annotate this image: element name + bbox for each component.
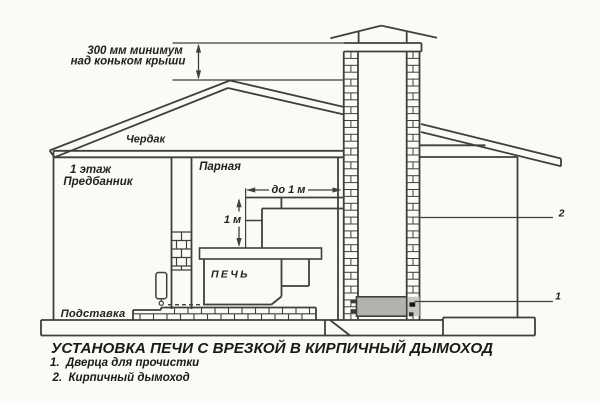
svg-text:1 м: 1 м [224, 214, 241, 226]
svg-text:ПЕЧЬ: ПЕЧЬ [211, 269, 250, 281]
svg-text:УСТАНОВКА ПЕЧИ С ВРЕЗКОЙ В КИР: УСТАНОВКА ПЕЧИ С ВРЕЗКОЙ В КИРПИЧНЫЙ ДЫМ… [51, 339, 493, 357]
svg-text:над коньком крыши: над коньком крыши [71, 56, 186, 68]
svg-text:1. Дверца для прочистки: 1. Дверца для прочистки [50, 357, 199, 369]
svg-text:Парная: Парная [199, 161, 241, 173]
svg-text:2. Кирпичный дымоход: 2. Кирпичный дымоход [52, 372, 190, 384]
svg-text:1: 1 [555, 291, 561, 303]
svg-text:2: 2 [558, 208, 565, 220]
svg-text:Подставка: Подставка [61, 308, 126, 320]
svg-text:Чердак: Чердак [126, 133, 167, 145]
svg-text:Предбанник: Предбанник [63, 176, 133, 188]
svg-text:до 1 м: до 1 м [272, 184, 306, 196]
svg-text:1 этаж: 1 этаж [70, 164, 112, 176]
